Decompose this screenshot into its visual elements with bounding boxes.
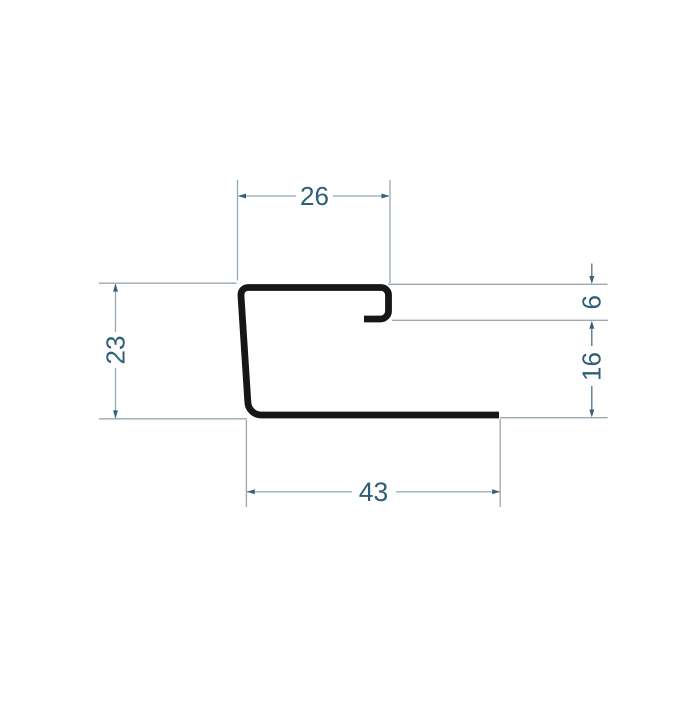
svg-text:26: 26 [300, 181, 329, 211]
svg-text:43: 43 [359, 477, 388, 507]
svg-text:16: 16 [577, 352, 607, 381]
svg-text:23: 23 [101, 336, 131, 365]
svg-text:6: 6 [577, 295, 607, 309]
